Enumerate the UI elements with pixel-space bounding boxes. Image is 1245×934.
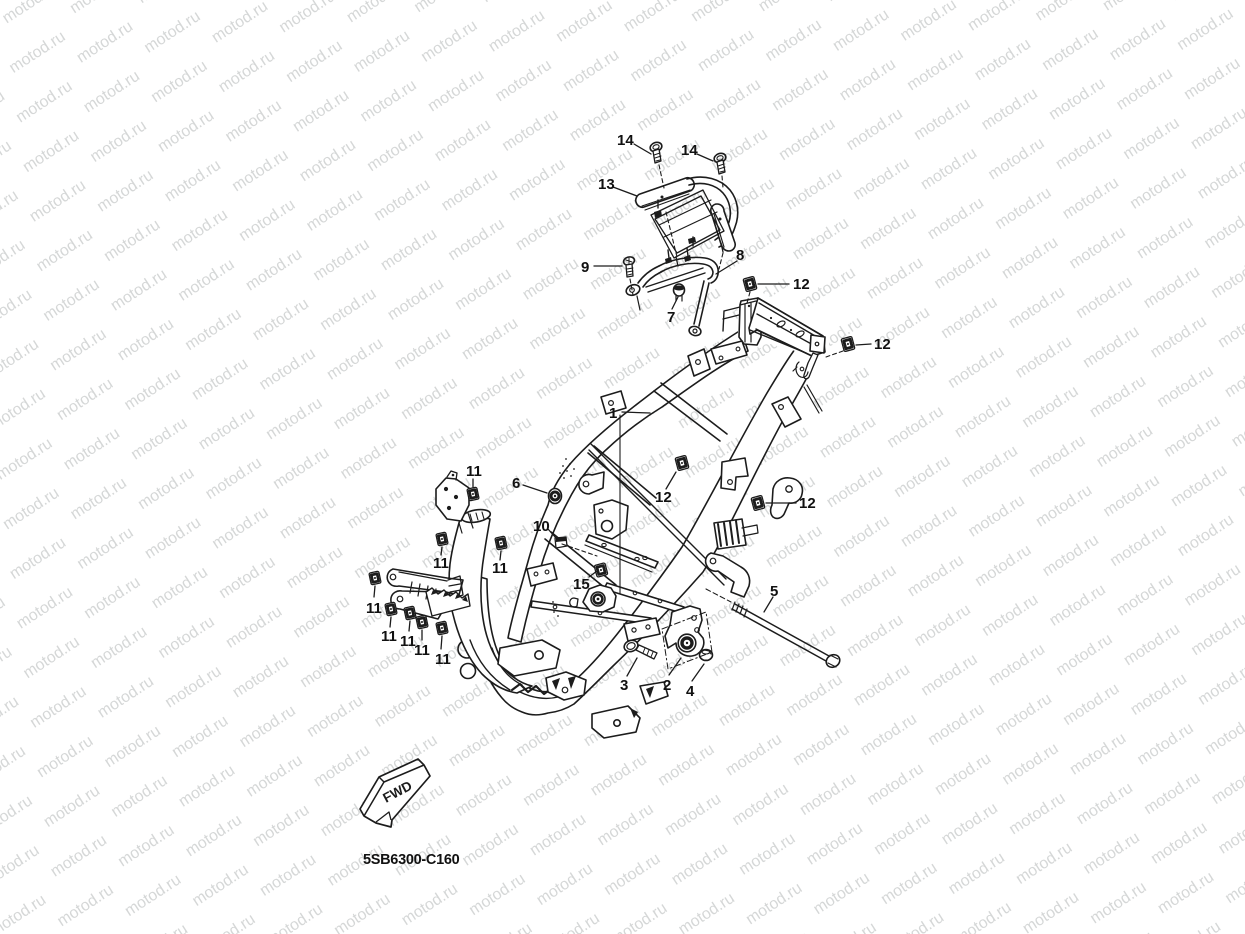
svg-text:motod.ru: motod.ru <box>1141 769 1203 818</box>
svg-text:15: 15 <box>573 576 590 593</box>
svg-text:motod.ru: motod.ru <box>371 176 433 225</box>
svg-text:motod.ru: motod.ru <box>932 750 994 799</box>
svg-text:motod.ru: motod.ru <box>783 671 845 720</box>
svg-text:motod.ru: motod.ru <box>858 711 920 760</box>
svg-text:motod.ru: motod.ru <box>297 643 359 692</box>
svg-text:motod.ru: motod.ru <box>453 771 515 820</box>
svg-text:motod.ru: motod.ru <box>486 7 548 56</box>
svg-text:motod.ru: motod.ru <box>0 485 62 534</box>
svg-text:motod.ru: motod.ru <box>74 18 136 67</box>
svg-text:motod.ru: motod.ru <box>338 434 400 483</box>
svg-text:motod.ru: motod.ru <box>1114 65 1176 114</box>
svg-text:motod.ru: motod.ru <box>520 255 582 304</box>
svg-text:motod.ru: motod.ru <box>317 285 379 334</box>
svg-text:motod.ru: motod.ru <box>1134 720 1196 769</box>
svg-text:motod.ru: motod.ru <box>0 644 15 693</box>
svg-text:motod.ru: motod.ru <box>1032 0 1094 24</box>
svg-text:motod.ru: motod.ru <box>1040 532 1102 581</box>
svg-text:motod.ru: motod.ru <box>830 6 892 55</box>
svg-text:motod.ru: motod.ru <box>986 641 1048 690</box>
svg-text:motod.ru: motod.ru <box>736 830 798 879</box>
svg-text:motod.ru: motod.ru <box>898 502 960 551</box>
svg-text:14: 14 <box>681 142 698 159</box>
svg-text:motod.ru: motod.ru <box>952 899 1014 934</box>
svg-text:motod.ru: motod.ru <box>0 237 28 286</box>
svg-text:motod.ru: motod.ru <box>709 632 771 681</box>
svg-text:motod.ru: motod.ru <box>155 107 217 156</box>
svg-text:11: 11 <box>435 651 451 668</box>
svg-text:motod.ru: motod.ru <box>40 276 102 325</box>
svg-text:motod.ru: motod.ru <box>857 205 919 254</box>
svg-text:motod.ru: motod.ru <box>938 294 1000 343</box>
svg-text:motod.ru: motod.ru <box>250 295 312 344</box>
svg-text:motod.ru: motod.ru <box>790 215 852 264</box>
svg-text:motod.ru: motod.ru <box>1222 352 1245 401</box>
svg-text:motod.ru: motod.ru <box>399 881 461 930</box>
svg-text:motod.ru: motod.ru <box>0 286 35 335</box>
svg-text:motod.ru: motod.ru <box>1162 918 1224 934</box>
svg-text:motod.ru: motod.ru <box>0 743 29 792</box>
svg-text:motod.ru: motod.ru <box>142 514 204 563</box>
svg-text:motod.ru: motod.ru <box>513 205 575 254</box>
svg-text:motod.ru: motod.ru <box>0 137 15 186</box>
svg-text:motod.ru: motod.ru <box>999 234 1061 283</box>
svg-text:motod.ru: motod.ru <box>385 275 447 324</box>
svg-text:motod.ru: motod.ru <box>0 38 1 87</box>
svg-text:motod.ru: motod.ru <box>169 206 231 255</box>
svg-text:motod.ru: motod.ru <box>864 254 926 303</box>
svg-text:motod.ru: motod.ru <box>357 77 419 126</box>
svg-text:motod.ru: motod.ru <box>965 492 1027 541</box>
svg-text:motod.ru: motod.ru <box>102 723 164 772</box>
svg-text:motod.ru: motod.ru <box>183 812 245 861</box>
svg-text:motod.ru: motod.ru <box>364 126 426 175</box>
svg-text:motod.ru: motod.ru <box>695 26 757 75</box>
svg-text:motod.ru: motod.ru <box>13 78 75 127</box>
svg-text:11: 11 <box>433 555 449 572</box>
svg-text:motod.ru: motod.ru <box>1120 115 1182 164</box>
svg-text:motod.ru: motod.ru <box>588 751 650 800</box>
svg-text:motod.ru: motod.ru <box>14 584 76 633</box>
svg-text:motod.ru: motod.ru <box>0 842 42 891</box>
svg-text:motod.ru: motod.ru <box>533 354 595 403</box>
svg-text:motod.ru: motod.ru <box>1033 482 1095 531</box>
svg-text:motod.ru: motod.ru <box>850 155 912 204</box>
svg-text:motod.ru: motod.ru <box>115 316 177 365</box>
svg-text:motod.ru: motod.ru <box>425 67 487 116</box>
svg-text:motod.ru: motod.ru <box>304 186 366 235</box>
svg-text:motod.ru: motod.ru <box>88 623 150 672</box>
svg-text:motod.ru: motod.ru <box>1114 571 1176 620</box>
svg-text:motod.ru: motod.ru <box>101 216 163 265</box>
svg-text:motod.ru: motod.ru <box>34 733 96 782</box>
svg-text:motod.ru: motod.ru <box>479 0 541 6</box>
svg-text:motod.ru: motod.ru <box>1100 0 1162 14</box>
svg-text:motod.ru: motod.ru <box>904 46 966 95</box>
svg-text:motod.ru: motod.ru <box>411 0 473 16</box>
svg-text:motod.ru: motod.ru <box>1235 452 1245 501</box>
svg-text:motod.ru: motod.ru <box>189 861 251 910</box>
svg-text:motod.ru: motod.ru <box>1060 174 1122 223</box>
svg-text:motod.ru: motod.ru <box>256 345 318 394</box>
svg-text:motod.ru: motod.ru <box>216 554 278 603</box>
svg-text:11: 11 <box>381 628 397 645</box>
svg-text:14: 14 <box>617 132 634 149</box>
svg-text:motod.ru: motod.ru <box>763 522 825 571</box>
svg-text:motod.ru: motod.ru <box>182 306 244 355</box>
svg-text:motod.ru: motod.ru <box>0 544 2 593</box>
svg-text:motod.ru: motod.ru <box>723 731 785 780</box>
svg-text:motod.ru: motod.ru <box>1019 383 1081 432</box>
svg-text:motod.ru: motod.ru <box>608 900 670 934</box>
svg-text:motod.ru: motod.ru <box>108 266 170 315</box>
svg-text:motod.ru: motod.ru <box>405 424 467 473</box>
svg-text:motod.ru: motod.ru <box>1154 363 1216 412</box>
svg-text:motod.ru: motod.ru <box>108 772 170 821</box>
svg-text:motod.ru: motod.ru <box>196 911 258 934</box>
svg-text:motod.ru: motod.ru <box>1100 472 1162 521</box>
svg-text:motod.ru: motod.ru <box>750 929 812 934</box>
svg-text:motod.ru: motod.ru <box>499 106 561 155</box>
svg-text:motod.ru: motod.ru <box>0 88 8 137</box>
svg-text:7: 7 <box>667 309 675 326</box>
svg-text:motod.ru: motod.ru <box>526 305 588 354</box>
svg-text:motod.ru: motod.ru <box>1013 839 1075 888</box>
svg-text:13: 13 <box>598 176 615 193</box>
svg-text:11: 11 <box>414 642 430 659</box>
svg-text:motod.ru: motod.ru <box>844 611 906 660</box>
svg-text:motod.ru: motod.ru <box>162 157 224 206</box>
svg-text:motod.ru: motod.ru <box>783 165 845 214</box>
svg-text:motod.ru: motod.ru <box>1107 15 1169 64</box>
svg-text:motod.ru: motod.ru <box>918 651 980 700</box>
svg-text:motod.ru: motod.ru <box>41 782 103 831</box>
svg-text:motod.ru: motod.ru <box>946 849 1008 898</box>
svg-text:motod.ru: motod.ru <box>155 613 217 662</box>
svg-text:motod.ru: motod.ru <box>372 682 434 731</box>
svg-text:motod.ru: motod.ru <box>1155 869 1217 918</box>
svg-text:motod.ru: motod.ru <box>135 464 197 513</box>
svg-text:1: 1 <box>609 405 617 422</box>
svg-text:motod.ru: motod.ru <box>135 0 197 7</box>
svg-text:motod.ru: motod.ru <box>81 574 143 623</box>
svg-text:motod.ru: motod.ru <box>688 0 750 25</box>
svg-text:motod.ru: motod.ru <box>290 87 352 136</box>
svg-text:motod.ru: motod.ru <box>34 227 96 276</box>
svg-text:motod.ru: motod.ru <box>473 414 535 463</box>
svg-text:motod.ru: motod.ru <box>459 315 521 364</box>
svg-text:motod.ru: motod.ru <box>965 0 1027 35</box>
svg-text:motod.ru: motod.ru <box>141 8 203 57</box>
svg-text:motod.ru: motod.ru <box>1053 631 1115 680</box>
svg-text:motod.ru: motod.ru <box>250 802 312 851</box>
svg-text:motod.ru: motod.ru <box>655 741 717 790</box>
svg-text:motod.ru: motod.ru <box>594 295 656 344</box>
svg-text:motod.ru: motod.ru <box>418 17 480 66</box>
svg-text:motod.ru: motod.ru <box>169 712 231 761</box>
svg-text:motod.ru: motod.ru <box>823 0 885 5</box>
svg-text:motod.ru: motod.ru <box>311 742 373 791</box>
svg-text:motod.ru: motod.ru <box>1148 313 1210 362</box>
svg-text:motod.ru: motod.ru <box>0 385 49 434</box>
svg-text:motod.ru: motod.ru <box>48 832 110 881</box>
svg-text:motod.ru: motod.ru <box>769 66 831 115</box>
svg-text:motod.ru: motod.ru <box>587 245 649 294</box>
svg-text:motod.ru: motod.ru <box>1080 323 1142 372</box>
svg-text:motod.ru: motod.ru <box>811 870 873 919</box>
svg-text:motod.ru: motod.ru <box>837 56 899 105</box>
svg-text:motod.ru: motod.ru <box>20 127 82 176</box>
svg-text:motod.ru: motod.ru <box>331 891 393 934</box>
svg-text:motod.ru: motod.ru <box>810 363 872 412</box>
svg-text:motod.ru: motod.ru <box>176 762 238 811</box>
svg-text:motod.ru: motod.ru <box>897 0 959 45</box>
svg-text:motod.ru: motod.ru <box>999 740 1061 789</box>
svg-text:motod.ru: motod.ru <box>1188 104 1245 153</box>
svg-text:motod.ru: motod.ru <box>391 325 453 374</box>
svg-text:motod.ru: motod.ru <box>209 504 271 553</box>
svg-text:motod.ru: motod.ru <box>310 236 372 285</box>
svg-text:motod.ru: motod.ru <box>601 850 663 899</box>
svg-text:motod.ru: motod.ru <box>175 256 237 305</box>
svg-text:motod.ru: motod.ru <box>851 661 913 710</box>
svg-text:motod.ru: motod.ru <box>1053 125 1115 174</box>
svg-text:motod.ru: motod.ru <box>20 633 82 682</box>
svg-text:motod.ru: motod.ru <box>959 442 1021 491</box>
svg-text:motod.ru: motod.ru <box>283 37 345 86</box>
svg-text:motod.ru: motod.ru <box>54 375 116 424</box>
svg-text:motod.ru: motod.ru <box>196 405 258 454</box>
svg-text:motod.ru: motod.ru <box>871 810 933 859</box>
svg-text:motod.ru: motod.ru <box>162 663 224 712</box>
svg-text:motod.ru: motod.ru <box>1195 154 1245 203</box>
svg-text:motod.ru: motod.ru <box>979 85 1041 134</box>
svg-text:4: 4 <box>686 683 695 700</box>
svg-text:motod.ru: motod.ru <box>1081 829 1143 878</box>
svg-text:motod.ru: motod.ru <box>918 145 980 194</box>
svg-text:motod.ru: motod.ru <box>446 722 508 771</box>
svg-text:motod.ru: motod.ru <box>864 760 926 809</box>
svg-text:motod.ru: motod.ru <box>1167 0 1229 4</box>
svg-text:motod.ru: motod.ru <box>743 880 805 929</box>
svg-text:motod.ru: motod.ru <box>1216 809 1245 858</box>
svg-text:motod.ru: motod.ru <box>1013 333 1075 382</box>
svg-text:motod.ru: motod.ru <box>1047 581 1109 630</box>
svg-text:motod.ru: motod.ru <box>952 393 1014 442</box>
svg-text:motod.ru: motod.ru <box>553 0 615 46</box>
svg-text:motod.ru: motod.ru <box>1066 224 1128 273</box>
svg-text:motod.ru: motod.ru <box>0 792 36 841</box>
svg-text:motod.ru: motod.ru <box>47 326 109 375</box>
svg-text:motod.ru: motod.ru <box>985 135 1047 184</box>
svg-text:motod.ru: motod.ru <box>87 117 149 166</box>
svg-text:motod.ru: motod.ru <box>506 156 568 205</box>
svg-text:motod.ru: motod.ru <box>1202 710 1245 759</box>
svg-text:motod.ru: motod.ru <box>925 701 987 750</box>
svg-text:12: 12 <box>793 276 810 293</box>
svg-text:motod.ru: motod.ru <box>1026 432 1088 481</box>
svg-text:motod.ru: motod.ru <box>1201 204 1245 253</box>
svg-text:motod.ru: motod.ru <box>344 0 406 26</box>
svg-text:2: 2 <box>663 677 671 694</box>
svg-text:motod.ru: motod.ru <box>762 16 824 65</box>
svg-text:motod.ru: motod.ru <box>236 196 298 245</box>
svg-text:motod.ru: motod.ru <box>594 801 656 850</box>
svg-text:motod.ru: motod.ru <box>1094 422 1156 471</box>
svg-text:8: 8 <box>736 247 744 264</box>
svg-text:motod.ru: motod.ru <box>824 463 886 512</box>
svg-text:11: 11 <box>492 560 508 577</box>
svg-text:3: 3 <box>620 677 628 694</box>
svg-text:motod.ru: motod.ru <box>702 76 764 125</box>
svg-text:motod.ru: motod.ru <box>1229 402 1245 451</box>
svg-text:motod.ru: motod.ru <box>432 116 494 165</box>
svg-text:motod.ru: motod.ru <box>541 910 603 934</box>
svg-text:motod.ru: motod.ru <box>81 68 143 117</box>
svg-text:motod.ru: motod.ru <box>61 425 123 474</box>
svg-text:motod.ru: motod.ru <box>844 105 906 154</box>
svg-text:motod.ru: motod.ru <box>264 901 326 934</box>
svg-text:motod.ru: motod.ru <box>222 97 284 146</box>
svg-text:motod.ru: motod.ru <box>304 692 366 741</box>
svg-text:motod.ru: motod.ru <box>459 821 521 870</box>
svg-text:motod.ru: motod.ru <box>1181 55 1243 104</box>
svg-text:motod.ru: motod.ru <box>263 395 325 444</box>
svg-text:motod.ru: motod.ru <box>884 403 946 452</box>
svg-text:motod.ru: motod.ru <box>817 413 879 462</box>
svg-text:motod.ru: motod.ru <box>716 681 778 730</box>
svg-text:motod.ru: motod.ru <box>1141 263 1203 312</box>
svg-text:motod.ru: motod.ru <box>148 58 210 107</box>
svg-text:motod.ru: motod.ru <box>54 881 116 930</box>
svg-text:motod.ru: motod.ru <box>129 921 191 934</box>
svg-text:motod.ru: motod.ru <box>1188 611 1245 660</box>
svg-text:motod.ru: motod.ru <box>189 355 251 404</box>
svg-text:motod.ru: motod.ru <box>243 752 305 801</box>
svg-text:motod.ru: motod.ru <box>931 244 993 293</box>
svg-text:motod.ru: motod.ru <box>513 712 575 761</box>
svg-text:motod.ru: motod.ru <box>830 512 892 561</box>
svg-text:motod.ru: motod.ru <box>452 265 514 314</box>
svg-text:5: 5 <box>770 583 778 600</box>
svg-text:motod.ru: motod.ru <box>149 564 211 613</box>
svg-text:motod.ru: motod.ru <box>351 27 413 76</box>
svg-text:motod.ru: motod.ru <box>1195 660 1245 709</box>
svg-text:motod.ru: motod.ru <box>331 385 393 434</box>
svg-text:motod.ru: motod.ru <box>972 542 1034 591</box>
svg-text:motod.ru: motod.ru <box>27 177 89 226</box>
svg-text:motod.ru: motod.ru <box>1209 759 1245 808</box>
svg-text:motod.ru: motod.ru <box>837 562 899 611</box>
svg-text:motod.ru: motod.ru <box>878 859 940 908</box>
svg-text:motod.ru: motod.ru <box>1087 373 1149 422</box>
svg-text:9: 9 <box>581 259 589 276</box>
svg-text:motod.ru: motod.ru <box>939 800 1001 849</box>
svg-text:motod.ru: motod.ru <box>945 343 1007 392</box>
svg-text:motod.ru: motod.ru <box>115 822 177 871</box>
svg-text:motod.ru: motod.ru <box>223 603 285 652</box>
svg-text:motod.ru: motod.ru <box>406 930 468 934</box>
svg-text:motod.ru: motod.ru <box>439 166 501 215</box>
svg-text:motod.ru: motod.ru <box>122 871 184 920</box>
svg-text:motod.ru: motod.ru <box>445 216 507 265</box>
svg-text:motod.ru: motod.ru <box>1046 75 1108 124</box>
svg-text:motod.ru: motod.ru <box>290 593 352 642</box>
svg-text:motod.ru: motod.ru <box>74 524 136 573</box>
svg-text:motod.ru: motod.ru <box>1127 164 1189 213</box>
svg-text:motod.ru: motod.ru <box>527 811 589 860</box>
svg-text:motod.ru: motod.ru <box>601 344 663 393</box>
svg-text:motod.ru: motod.ru <box>297 137 359 186</box>
svg-text:motod.ru: motod.ru <box>203 454 265 503</box>
svg-text:motod.ru: motod.ru <box>797 770 859 819</box>
svg-text:motod.ru: motod.ru <box>560 47 622 96</box>
svg-text:motod.ru: motod.ru <box>993 690 1055 739</box>
svg-text:motod.ru: motod.ru <box>6 28 68 77</box>
svg-text:motod.ru: motod.ru <box>7 534 69 583</box>
svg-text:motod.ru: motod.ru <box>1060 680 1122 729</box>
svg-text:motod.ru: motod.ru <box>0 594 8 643</box>
svg-text:motod.ru: motod.ru <box>891 453 953 502</box>
svg-text:motod.ru: motod.ru <box>676 890 738 934</box>
svg-text:6: 6 <box>512 475 520 492</box>
svg-text:motod.ru: motod.ru <box>466 870 528 919</box>
svg-text:motod.ru: motod.ru <box>324 335 386 384</box>
svg-text:motod.ru: motod.ru <box>1107 521 1169 570</box>
svg-text:motod.ru: motod.ru <box>128 415 190 464</box>
svg-text:motod.ru: motod.ru <box>912 601 974 650</box>
svg-text:motod.ru: motod.ru <box>634 86 696 135</box>
svg-text:motod.ru: motod.ru <box>1073 273 1135 322</box>
svg-text:motod.ru: motod.ru <box>284 543 346 592</box>
svg-text:motod.ru: motod.ru <box>804 820 866 869</box>
svg-text:motod.ru: motod.ru <box>243 246 305 295</box>
svg-text:motod.ru: motod.ru <box>770 572 832 621</box>
svg-text:motod.ru: motod.ru <box>1229 908 1245 934</box>
svg-text:motod.ru: motod.ru <box>94 167 156 216</box>
svg-text:motod.ru: motod.ru <box>1074 780 1136 829</box>
svg-text:motod.ru: motod.ru <box>580 195 642 244</box>
svg-text:motod.ru: motod.ru <box>276 0 338 36</box>
svg-text:motod.ru: motod.ru <box>756 0 818 15</box>
svg-text:motod.ru: motod.ru <box>216 47 278 96</box>
svg-text:motod.ru: motod.ru <box>398 374 460 423</box>
svg-text:motod.ru: motod.ru <box>1182 561 1244 610</box>
svg-text:motod.ru: motod.ru <box>1087 879 1149 928</box>
svg-text:motod.ru: motod.ru <box>1128 670 1190 719</box>
svg-text:motod.ru: motod.ru <box>230 653 292 702</box>
svg-text:11: 11 <box>366 600 382 617</box>
svg-text:5SB6300-C160: 5SB6300-C160 <box>363 852 460 868</box>
svg-text:motod.ru: motod.ru <box>67 0 129 17</box>
svg-text:motod.ru: motod.ru <box>878 353 940 402</box>
svg-text:motod.ru: motod.ru <box>979 591 1041 640</box>
svg-text:motod.ru: motod.ru <box>1222 859 1245 908</box>
svg-text:motod.ru: motod.ru <box>885 909 947 934</box>
svg-text:motod.ru: motod.ru <box>27 683 89 732</box>
svg-text:motod.ru: motod.ru <box>344 484 406 533</box>
svg-text:motod.ru: motod.ru <box>0 435 55 484</box>
svg-text:motod.ru: motod.ru <box>0 187 21 236</box>
svg-text:motod.ru: motod.ru <box>0 0 62 27</box>
svg-text:motod.ru: motod.ru <box>627 36 689 85</box>
svg-text:motod.ru: motod.ru <box>95 673 157 722</box>
svg-text:motod.ru: motod.ru <box>534 860 596 909</box>
svg-text:motod.ru: motod.ru <box>1067 730 1129 779</box>
svg-text:motod.ru: motod.ru <box>776 115 838 164</box>
svg-text:motod.ru: motod.ru <box>473 920 535 934</box>
svg-text:11: 11 <box>466 463 482 480</box>
